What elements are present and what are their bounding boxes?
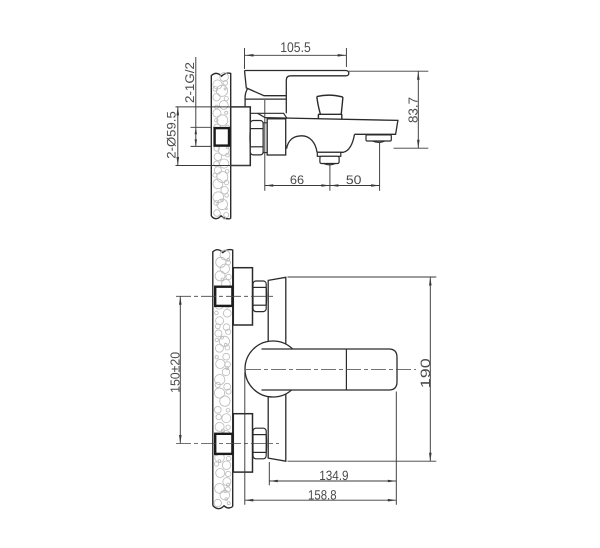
svg-text:66: 66 [290,173,304,187]
svg-text:105.5: 105.5 [280,39,311,55]
svg-text:2-1G/2: 2-1G/2 [183,62,197,103]
svg-text:50: 50 [346,173,362,187]
svg-text:134.9: 134.9 [319,468,348,483]
svg-text:2-Ø59.5: 2-Ø59.5 [164,111,178,159]
svg-text:83.7: 83.7 [405,97,420,123]
svg-text:158.8: 158.8 [308,488,337,503]
svg-text:150±20: 150±20 [168,352,183,393]
svg-text:190: 190 [418,358,433,388]
